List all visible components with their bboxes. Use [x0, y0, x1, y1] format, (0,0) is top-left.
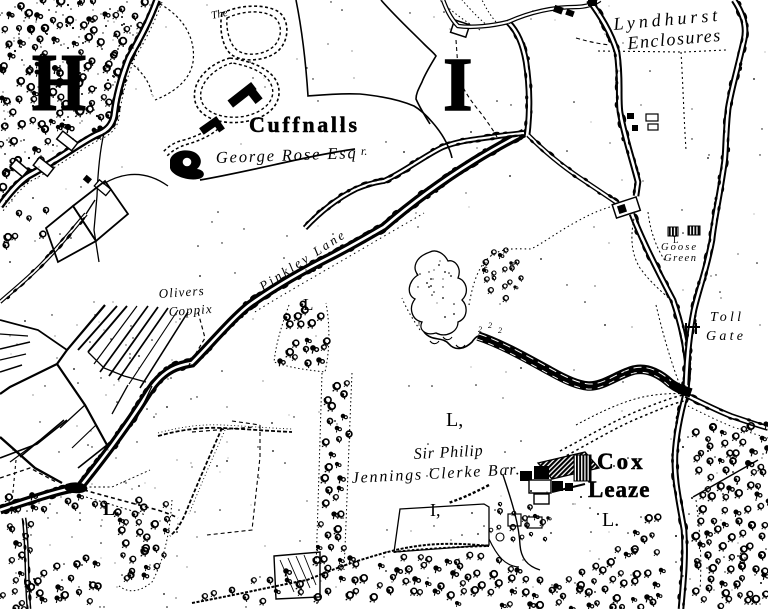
svg-text:Olivers: Olivers — [158, 283, 204, 301]
svg-text:Coppix: Coppix — [168, 301, 212, 319]
svg-text:I,: I, — [430, 500, 441, 520]
svg-text:Cox: Cox — [597, 449, 646, 474]
svg-text:Green: Green — [664, 253, 696, 264]
svg-text:Gate: Gate — [706, 329, 743, 344]
svg-text:Sir Philip: Sir Philip — [413, 442, 483, 463]
svg-text:Leaze: Leaze — [588, 477, 650, 502]
svg-text:H: H — [32, 37, 86, 128]
svg-text:I: I — [443, 43, 473, 127]
svg-text:Goose: Goose — [661, 242, 696, 253]
svg-text:L: L — [673, 235, 679, 245]
svg-text:L: L — [303, 295, 313, 314]
svg-text:L,: L, — [446, 409, 463, 431]
svg-text:2: 2 — [488, 321, 492, 330]
svg-text:r.: r. — [361, 144, 368, 158]
svg-text:2: 2 — [498, 326, 502, 335]
svg-text:Toll: Toll — [710, 310, 741, 325]
svg-text:L.: L. — [602, 509, 619, 531]
